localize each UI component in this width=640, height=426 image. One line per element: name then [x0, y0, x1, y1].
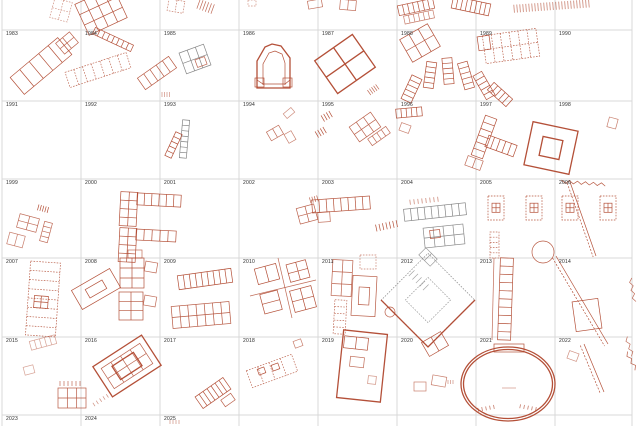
year-label-1998: 1998: [559, 103, 571, 108]
plan-2010-grid: [290, 286, 317, 313]
year-label-1988: 1988: [401, 32, 413, 37]
year-label-2013: 2013: [480, 260, 492, 265]
year-label-1987: 1987: [322, 32, 334, 37]
plan-top-grid: [167, 0, 185, 13]
plan-2005-stamp: [488, 196, 504, 220]
plan-2012-grid: [419, 248, 437, 266]
year-label-1992: 1992: [85, 103, 97, 108]
year-label-1993: 1993: [164, 103, 176, 108]
plan-2004-grid: [423, 224, 465, 248]
plan-2005-ladder: [490, 232, 499, 258]
year-label-2011: 2011: [322, 260, 334, 265]
year-label-2004: 2004: [401, 181, 413, 186]
plan-2000-ladder: [137, 193, 182, 207]
year-label-2005: 2005: [480, 181, 492, 186]
year-label-2002: 2002: [243, 181, 255, 186]
year-label-1994: 1994: [243, 103, 255, 108]
plan-2021-comb: [520, 404, 536, 411]
plan-1999-grid: [17, 214, 40, 233]
plan-2011-grid: [331, 260, 353, 297]
plan-2018-rect: [257, 367, 266, 375]
plan-2007-grid: [34, 296, 49, 309]
plan-2020-grid: [431, 375, 447, 387]
year-label-1999: 1999: [6, 181, 18, 186]
plan-1998-rect: [607, 117, 618, 129]
plan-2014-zigzag: [625, 337, 635, 357]
year-label-2018: 2018: [243, 339, 255, 344]
plan-top-rect: [248, 0, 256, 6]
plan-top-grid: [50, 0, 73, 22]
plan-top-ladder: [403, 10, 434, 24]
plan-1983-ladder: [10, 38, 72, 95]
plan-2012-rect: [405, 277, 450, 322]
plan-1987-grid: [315, 34, 376, 93]
year-label-2024: 2024: [85, 417, 97, 422]
year-label-1991: 1991: [6, 103, 18, 108]
plan-1995-ladder: [368, 126, 391, 145]
year-label-1996: 1996: [401, 103, 413, 108]
year-label-2020: 2020: [401, 339, 413, 344]
plan-top-grid: [340, 0, 357, 11]
plan-2017-ladder: [195, 378, 231, 409]
plan-top-rect: [307, 0, 322, 9]
year-label-2019: 2019: [322, 339, 334, 344]
year-label-2025: 2025: [164, 417, 176, 422]
year-label-2015: 2015: [6, 339, 18, 344]
plan-2011-courtyard: [351, 275, 377, 316]
plan-2010-line: [250, 280, 316, 296]
plan-1995-comb: [321, 111, 332, 122]
plan-1987-comb: [367, 84, 379, 95]
plan-2022-zigzag: [625, 352, 638, 371]
plan-2009-ladder: [177, 268, 232, 289]
plan-1984-ladder: [137, 56, 176, 89]
plan-2010-line: [278, 258, 292, 318]
plan-2002-grid: [296, 204, 318, 224]
year-label-1984: 1984: [85, 32, 97, 37]
plan-2000-grid: [119, 192, 138, 227]
plan-2013-line: [492, 258, 494, 340]
plan-2019-grid: [343, 336, 368, 350]
year-label-2010: 2010: [243, 260, 255, 265]
plan-1996-ladder: [396, 107, 423, 118]
plan-2001-ladder: [136, 229, 177, 242]
year-label-2012: 2012: [401, 260, 413, 265]
plan-2018-rect: [293, 339, 303, 348]
year-label-1986: 1986: [243, 32, 255, 37]
plan-2006-circle: [532, 241, 554, 263]
plan-2012-path: [381, 300, 475, 347]
excavation-plans-poster: 1983198419851986198719881989199019911992…: [0, 0, 640, 426]
plan-2018-ladder: [246, 354, 297, 387]
plan-2021-ellipse: [461, 347, 555, 421]
plan-2006-stamp: [600, 196, 616, 220]
plan-2008-grid: [119, 292, 143, 320]
plan-2015-comb: [60, 381, 80, 386]
plan-1999-comb: [37, 204, 48, 212]
year-label-2014: 2014: [559, 260, 571, 265]
plan-2005-stamp: [526, 196, 542, 220]
plan-1985-grid: [179, 44, 211, 74]
plan-1995-comb: [315, 127, 326, 138]
plan-1999-grid: [7, 232, 26, 248]
plan-2020-comb: [448, 380, 453, 384]
plan-1994-rect: [283, 107, 295, 118]
plan-top-comb: [197, 0, 215, 14]
plan-1996-rect: [399, 123, 411, 134]
plan-1999-ladder: [40, 221, 53, 242]
plan-1994-grid: [266, 125, 283, 141]
plan-2020-rect: [414, 382, 426, 391]
year-label-2022: 2022: [559, 339, 571, 344]
plan-2010-grid: [286, 260, 310, 283]
year-label-2001: 2001: [164, 181, 176, 186]
plan-1986-path: [263, 51, 285, 85]
plan-2008-rect: [144, 261, 158, 273]
plan-2013-ladder: [498, 258, 514, 340]
plan-2022-road: [580, 344, 604, 394]
plan-1988-ladder: [457, 61, 474, 90]
plan-top-comb: [514, 0, 589, 13]
year-label-1995: 1995: [322, 103, 334, 108]
plan-2008-courtyard: [71, 268, 120, 309]
plan-2006-road: [567, 182, 596, 257]
plan-top-ladder: [451, 0, 491, 16]
year-label-2009: 2009: [164, 260, 176, 265]
plan-1994-rect: [284, 131, 296, 144]
year-label-1990: 1990: [559, 32, 571, 37]
plan-2016-grid: [101, 343, 153, 388]
plan-2012-comb: [409, 270, 429, 290]
year-label-2008: 2008: [85, 260, 97, 265]
plan-1998-courtyard: [524, 122, 578, 175]
plan-1983-grid: [56, 32, 79, 54]
plan-1993-ladder: [179, 120, 189, 158]
plan-2004-ladder: [404, 203, 467, 221]
plan-2007-ladder: [25, 261, 60, 337]
plan-2011-rect: [360, 255, 376, 269]
plan-1995-grid: [349, 112, 381, 142]
year-label-2016: 2016: [85, 339, 97, 344]
plan-2015-grid: [58, 388, 86, 408]
plan-2010-grid: [254, 263, 279, 284]
plan-2019-rect: [350, 356, 365, 367]
plan-1984-ladder: [65, 53, 131, 88]
plan-1988-ladder: [423, 61, 437, 88]
year-label-1983: 1983: [6, 32, 18, 37]
plan-2003-comb: [376, 220, 398, 231]
plans-canvas: [0, 0, 640, 426]
year-label-2003: 2003: [322, 181, 334, 186]
plan-2022-rect: [567, 351, 579, 362]
plan-2009-grid: [171, 302, 231, 329]
plan-2010-grid: [260, 290, 283, 314]
plan-2004-comb: [410, 197, 438, 205]
plan-2012-rect: [381, 253, 474, 346]
plan-2019-rect: [368, 376, 377, 385]
plan-2011-ladder: [333, 300, 347, 335]
plan-2003-ladder: [312, 196, 371, 213]
year-label-2017: 2017: [164, 339, 176, 344]
year-label-2021: 2021: [480, 339, 492, 344]
plan-1988-ladder: [442, 58, 454, 85]
plan-1988-ladder: [401, 75, 422, 103]
year-label-1985: 1985: [164, 32, 176, 37]
year-label-2023: 2023: [6, 417, 18, 422]
plan-2000-grid: [118, 228, 137, 263]
plan-2018-rect: [271, 363, 280, 371]
year-label-2000: 2000: [85, 181, 97, 186]
year-label-2006: 2006: [559, 181, 571, 186]
year-label-1997: 1997: [480, 103, 492, 108]
plan-2003-rect: [318, 212, 331, 223]
year-label-2007: 2007: [6, 260, 18, 265]
plan-shapes: [7, 0, 638, 424]
plan-2008-grid: [120, 258, 144, 288]
plan-1985-comb: [162, 92, 170, 97]
plan-2008-rect: [143, 295, 157, 307]
year-label-1989: 1989: [480, 32, 492, 37]
plan-2017-rect: [221, 393, 235, 406]
plan-2015-rect: [23, 365, 35, 375]
plan-2016-comb: [93, 392, 112, 406]
